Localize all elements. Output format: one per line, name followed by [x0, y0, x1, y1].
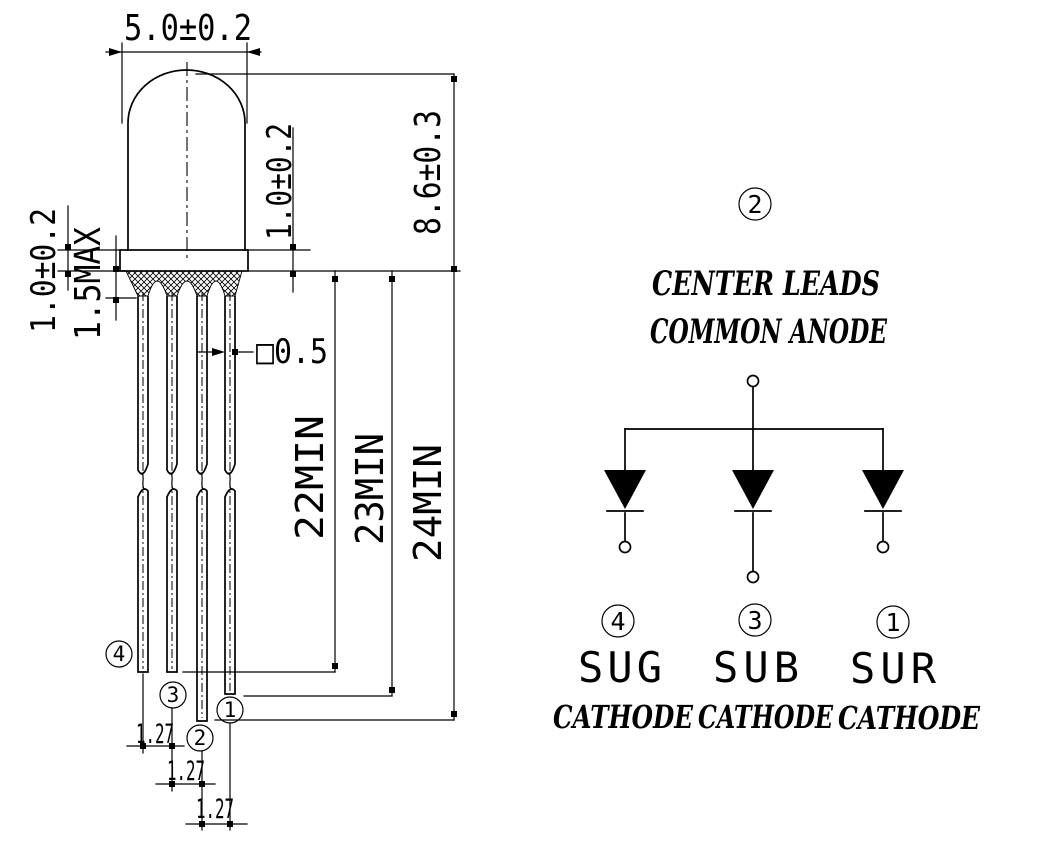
- schematic-pin3-number: 3: [747, 606, 762, 635]
- dim-body-height-label: 8.6±0.3: [408, 110, 449, 235]
- note-common-anode: COMMON ANODE: [650, 312, 888, 352]
- diode-green: [604, 470, 646, 553]
- dim-pitch2-label: 1.27: [167, 756, 205, 787]
- dim-pitch3-label: 1.27: [196, 794, 234, 825]
- schematic-pin-1: 1 SUR CATHODE: [838, 606, 980, 737]
- lead-pin3: [167, 292, 177, 672]
- dim-22min-label: 22MIN: [288, 415, 332, 540]
- pin-callout-3: 3: [160, 682, 186, 708]
- terminal-label-cathode-1: CATHODE: [838, 699, 980, 737]
- dimension-lead-cross-section: □0.5: [198, 332, 328, 372]
- diode-blue: [732, 470, 774, 583]
- pin4-number: 4: [113, 642, 126, 666]
- dimension-lens-diameter: 5.0±0.2: [106, 8, 261, 123]
- dim-23min-label: 23MIN: [348, 433, 392, 545]
- diode-red: [862, 470, 904, 553]
- dim-24min-label: 24MIN: [406, 444, 450, 562]
- dim-standoff-label: 1.5MAX: [68, 227, 109, 340]
- drawing-canvas: 5.0±0.2: [0, 0, 1047, 860]
- note-center-leads: CENTER LEADS: [652, 264, 880, 304]
- flange-outline: [120, 250, 248, 271]
- cathode-terminal-1: [878, 542, 889, 553]
- schematic-top-pin-number: 2: [747, 190, 762, 219]
- signal-name-sug: SUG: [578, 643, 662, 692]
- schematic-pin4-number: 4: [610, 607, 625, 636]
- schematic-pin1-number: 1: [885, 608, 900, 637]
- dim-lead-section-label: □0.5: [256, 332, 328, 372]
- lens-body-outline: [120, 62, 248, 271]
- signal-name-sub: SUB: [713, 643, 799, 692]
- pin1-number: 1: [224, 698, 237, 722]
- schematic-diagram: 2 CENTER LEADS COMMON ANODE: [553, 188, 980, 737]
- led-package-drawing: 5.0±0.2: [24, 8, 460, 830]
- lead-pin2: [197, 292, 207, 721]
- schematic-top-pin-callout: 2: [739, 188, 771, 220]
- pin-callout-1: 1: [217, 697, 243, 723]
- common-anode-rail: [625, 376, 883, 471]
- schematic-pin-3: 3 SUB CATHODE: [698, 604, 833, 736]
- led-datasheet-drawing: 5.0±0.2: [0, 0, 1047, 860]
- pin-callout-2: 2: [187, 725, 213, 751]
- dim-flange-inner-label: 1.0±0.2: [260, 123, 300, 240]
- cathode-terminal-3: [748, 572, 759, 583]
- terminal-label-cathode-4: CATHODE: [553, 698, 693, 736]
- pin2-number: 2: [194, 726, 207, 750]
- lead-pin4: [138, 292, 148, 672]
- terminal-label-cathode-3: CATHODE: [698, 698, 833, 736]
- anode-terminal: [748, 376, 759, 387]
- pin3-number: 3: [167, 683, 180, 707]
- pin-callout-4: 4: [106, 641, 132, 667]
- schematic-pin-4: 4 SUG CATHODE: [553, 605, 693, 736]
- dimension-lead-length-24min: 24MIN: [215, 444, 457, 720]
- dim-pitch1-label: 1.27: [136, 719, 174, 750]
- dimension-standoff-max: 1.5MAX: [68, 227, 136, 340]
- signal-name-sur: SUR: [850, 644, 937, 693]
- dim-lens-diameter-label: 5.0±0.2: [124, 8, 252, 49]
- cathode-terminal-4: [620, 542, 631, 553]
- dimension-flange-inner: 1.0±0.2: [248, 123, 310, 292]
